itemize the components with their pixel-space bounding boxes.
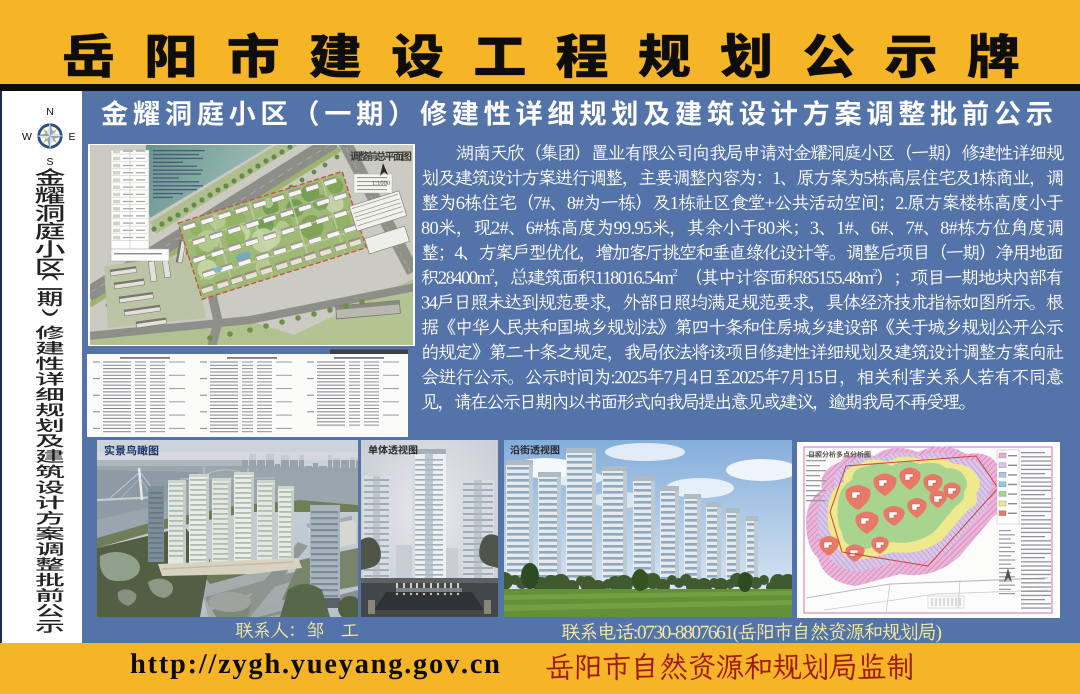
svg-text:E: E bbox=[68, 131, 75, 143]
svg-text:N: N bbox=[46, 106, 54, 118]
svg-text:W: W bbox=[22, 131, 32, 143]
svg-text:S: S bbox=[46, 156, 53, 168]
